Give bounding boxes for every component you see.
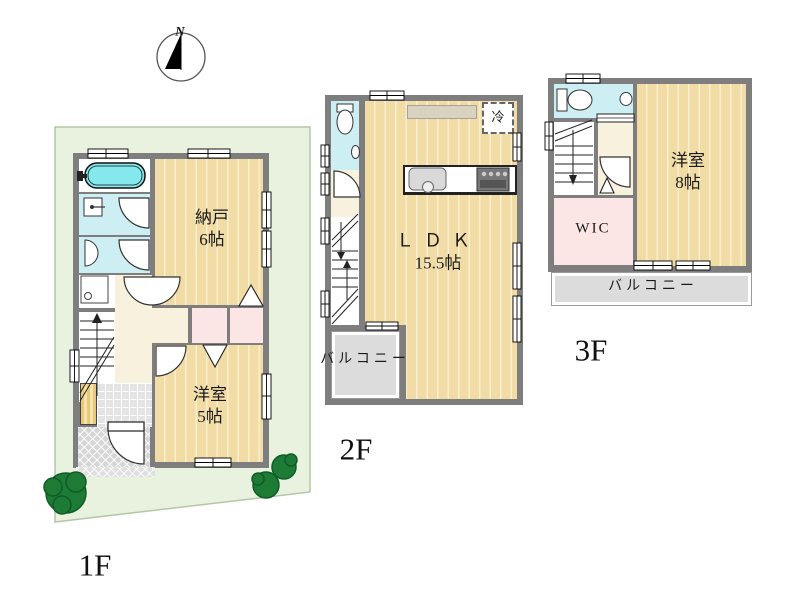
window-icon: [188, 149, 230, 158]
window-icon: [321, 145, 329, 167]
stairs-detail-2f: [332, 214, 358, 324]
bathtub-icon: [77, 163, 145, 188]
kitchen-sink-icon: [409, 168, 446, 193]
ldk-size: 15.5帖: [396, 253, 480, 275]
western-room5-size: 5帖: [193, 406, 227, 428]
label-balcony-3f: バルコニー: [608, 280, 698, 294]
window-icon: [70, 350, 79, 382]
corner-sink-icon: [85, 240, 98, 266]
western-room8-name: 洋室: [671, 150, 705, 172]
folding-door-icon: [239, 285, 263, 306]
label-western-room-8: 洋室 8帖: [671, 150, 705, 194]
window-icon: [545, 122, 553, 150]
western-room5-name: 洋室: [193, 384, 227, 406]
label-balcony-2f: バルコニー: [320, 353, 410, 367]
label-refrigerator: 冷: [491, 111, 504, 124]
label-wic: WIC: [575, 222, 610, 237]
storage-room-size: 6帖: [195, 229, 229, 251]
window-icon: [366, 322, 398, 330]
washing-machine-pan-icon: [81, 276, 108, 303]
storage-room-name: 納戸: [195, 207, 229, 229]
label-floor-2f: 2F: [340, 434, 373, 465]
toilet-icon: [557, 89, 632, 111]
window-icon: [262, 192, 271, 228]
window-icon: [321, 218, 329, 244]
window-icon: [370, 91, 404, 100]
window-icon: [513, 133, 521, 161]
label-floor-1f: 1F: [79, 550, 112, 581]
label-floor-3f: 3F: [575, 335, 608, 366]
window-icon: [195, 458, 231, 467]
window-icon: [321, 291, 329, 317]
ldk-name: ＬＤＫ: [396, 229, 480, 252]
floor-plan-page: N 納戸 6帖 洋室 5帖 ＬＤＫ 15.5帖 洋室 8帖 WIC バルコニー …: [0, 0, 800, 600]
front-door-leaf: [108, 422, 144, 431]
western-room8-size: 8帖: [671, 172, 705, 194]
window-icon: [566, 74, 600, 83]
toilet-icon: [337, 104, 360, 159]
folding-door-icon: [203, 345, 227, 367]
stairs-detail-3f: [555, 120, 593, 185]
washbasin-icon: [84, 198, 105, 216]
stove-icon: [477, 168, 509, 191]
window-icon: [676, 261, 710, 270]
label-ldk: ＬＤＫ 15.5帖: [396, 229, 480, 274]
compass-icon: [157, 33, 205, 81]
compass-north-label: N: [175, 25, 184, 38]
label-western-room-5: 洋室 5帖: [193, 384, 227, 428]
sliding-door-icon: [597, 114, 634, 122]
window-icon: [321, 173, 329, 195]
stairs-detail-1f: [80, 313, 114, 401]
window-icon: [262, 374, 271, 419]
window-icon: [634, 261, 672, 270]
tree-icon: [272, 454, 297, 479]
window-icon: [513, 296, 521, 342]
tree-icon: [44, 472, 86, 514]
door-arc-icon: [108, 157, 630, 464]
plan-symbols-overlay: [0, 0, 800, 600]
window-icon: [513, 243, 521, 289]
label-storage-room: 納戸 6帖: [195, 207, 229, 251]
window-icon: [88, 149, 128, 158]
window-icon: [262, 231, 271, 267]
